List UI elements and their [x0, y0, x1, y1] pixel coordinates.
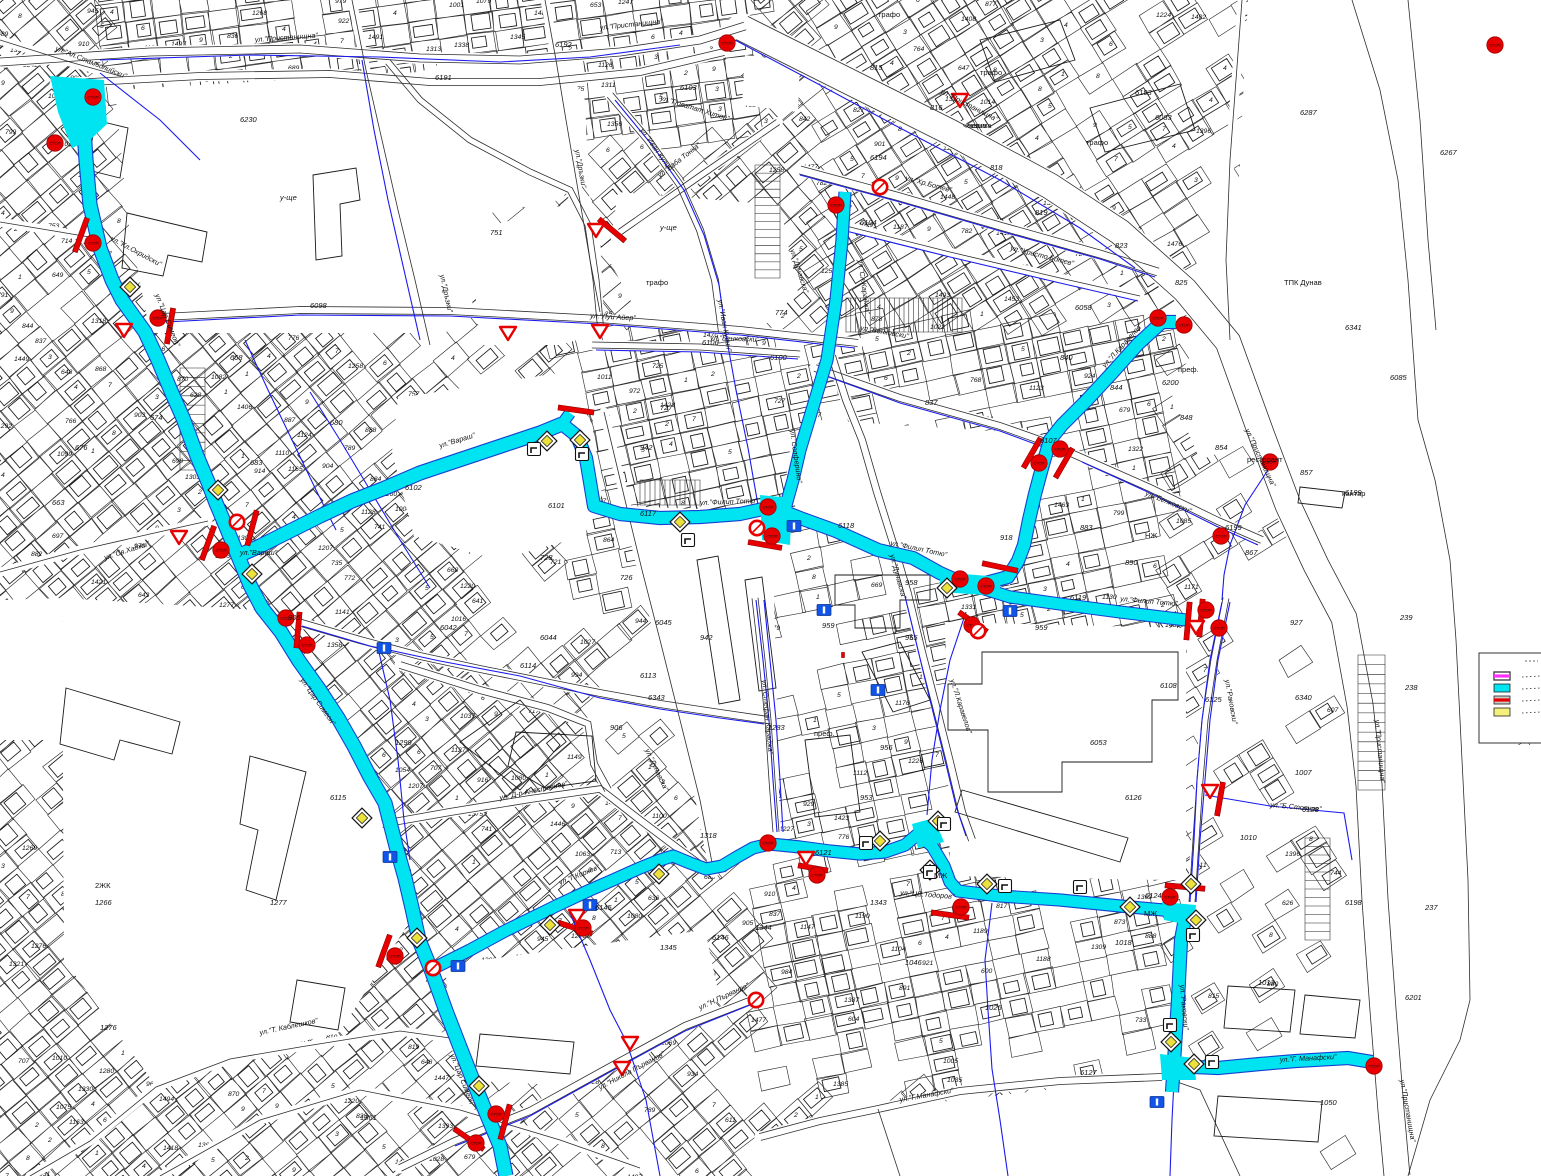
svg-text:6053: 6053 [1090, 738, 1108, 747]
svg-text:945: 945 [537, 936, 549, 943]
svg-text:1: 1 [472, 859, 476, 866]
svg-text:1224: 1224 [1156, 12, 1171, 19]
svg-text:4: 4 [1066, 561, 1070, 568]
svg-text:1408: 1408 [961, 16, 976, 23]
svg-text:4: 4 [91, 1101, 95, 1108]
svg-text:789: 789 [644, 1107, 656, 1114]
svg-text:707: 707 [18, 1058, 30, 1065]
svg-text:890: 890 [1125, 558, 1138, 567]
svg-text:1421: 1421 [91, 579, 106, 586]
svg-text:9: 9 [712, 66, 716, 73]
svg-text:6: 6 [884, 375, 888, 382]
svg-text:1396: 1396 [1196, 128, 1211, 135]
svg-text:910: 910 [78, 41, 90, 48]
svg-text:732: 732 [504, 0, 516, 1]
svg-text:5: 5 [799, 246, 803, 253]
svg-text:1010: 1010 [1240, 833, 1258, 842]
svg-text:888: 888 [365, 427, 377, 434]
svg-text:906: 906 [610, 723, 623, 732]
svg-text:1188: 1188 [1036, 956, 1051, 963]
svg-text:1: 1 [684, 377, 688, 384]
svg-text:6230: 6230 [240, 115, 258, 124]
svg-text:СТОП: СТОП [490, 1112, 501, 1117]
svg-text:934: 934 [687, 1071, 699, 1078]
svg-text:4: 4 [1, 210, 5, 217]
svg-text:942: 942 [640, 443, 653, 452]
svg-text:6103: 6103 [680, 83, 698, 92]
svg-text:714: 714 [61, 238, 73, 245]
svg-text:1127: 1127 [451, 747, 466, 754]
svg-text:6193: 6193 [1135, 88, 1153, 97]
svg-text:8: 8 [1038, 86, 1042, 93]
svg-text:6083: 6083 [1155, 113, 1173, 122]
svg-text:663: 663 [52, 498, 65, 507]
svg-text:6287: 6287 [1300, 108, 1318, 117]
svg-text:5: 5 [1128, 124, 1132, 131]
svg-text:9: 9 [571, 803, 575, 810]
svg-text:8: 8 [812, 574, 816, 581]
svg-text:3: 3 [177, 507, 181, 514]
svg-text:1: 1 [241, 453, 245, 460]
svg-text:903: 903 [134, 412, 146, 419]
svg-text:1418: 1418 [163, 1145, 178, 1152]
svg-text:7: 7 [245, 502, 249, 509]
svg-text:864: 864 [603, 537, 615, 544]
svg-text:трафо: трафо [646, 278, 668, 287]
svg-text:1449: 1449 [14, 356, 29, 363]
svg-text:6102: 6102 [405, 483, 423, 492]
svg-text:669: 669 [871, 582, 883, 589]
svg-text:СТОП: СТОП [87, 241, 98, 246]
svg-text:766: 766 [65, 418, 77, 425]
svg-text:1007: 1007 [1295, 768, 1313, 777]
svg-text:823: 823 [1115, 241, 1128, 250]
svg-text:6: 6 [417, 749, 421, 756]
svg-text:782: 782 [961, 228, 973, 235]
svg-text:СТОП: СТОП [1213, 626, 1224, 631]
svg-text:1149: 1149 [567, 754, 582, 761]
svg-text:1037: 1037 [460, 713, 475, 720]
svg-text:1187: 1187 [893, 224, 908, 231]
svg-text:1176: 1176 [895, 700, 910, 707]
svg-text:1011: 1011 [597, 374, 612, 381]
svg-text:1130: 1130 [1102, 594, 1117, 601]
svg-text:чешма: чешма [963, 121, 987, 130]
svg-text:6127: 6127 [1080, 1068, 1098, 1077]
svg-text:1247: 1247 [618, 0, 633, 6]
svg-text:5: 5 [728, 449, 732, 456]
svg-text:8: 8 [26, 1155, 30, 1162]
svg-text:904: 904 [322, 463, 334, 470]
svg-text:600: 600 [981, 968, 993, 975]
svg-text:1: 1 [1061, 71, 1065, 78]
svg-text:2: 2 [806, 555, 811, 562]
svg-text:791: 791 [0, 292, 9, 299]
svg-text:6121: 6121 [815, 848, 832, 857]
svg-text:5: 5 [382, 1144, 386, 1151]
svg-text:6340: 6340 [1295, 693, 1313, 702]
svg-text:9: 9 [927, 226, 931, 233]
svg-text:2: 2 [244, 1155, 249, 1162]
svg-text:1448: 1448 [940, 194, 955, 201]
svg-text:837: 837 [925, 398, 938, 407]
svg-text:922: 922 [338, 18, 350, 25]
svg-text:1227: 1227 [779, 826, 794, 833]
svg-text:1: 1 [1170, 404, 1174, 411]
svg-text:9: 9 [275, 1103, 279, 1110]
svg-text:1338: 1338 [454, 42, 469, 49]
svg-text:3: 3 [1194, 177, 1198, 184]
svg-text:1046: 1046 [905, 958, 923, 967]
svg-text:4: 4 [74, 384, 78, 391]
svg-text:1207: 1207 [408, 783, 423, 790]
svg-text:7: 7 [1114, 156, 1118, 163]
svg-text:5: 5 [875, 336, 879, 343]
svg-text:910: 910 [764, 891, 776, 898]
svg-text:844: 844 [1110, 383, 1123, 392]
svg-text:994: 994 [571, 672, 583, 679]
svg-text:1491: 1491 [368, 34, 383, 41]
svg-text:2ЖК: 2ЖК [95, 881, 111, 890]
svg-text:1299: 1299 [395, 738, 413, 747]
svg-text:4: 4 [890, 60, 894, 67]
svg-text:883: 883 [1080, 523, 1093, 532]
svg-text:733: 733 [1135, 1017, 1147, 1024]
svg-text:679: 679 [464, 1154, 476, 1161]
svg-text:5: 5 [1048, 103, 1052, 110]
svg-text:2: 2 [906, 350, 911, 357]
svg-text:8: 8 [592, 915, 596, 922]
svg-text:7: 7 [1203, 667, 1207, 674]
svg-text:2: 2 [197, 489, 202, 496]
svg-text:1: 1 [816, 594, 820, 601]
svg-text:1110: 1110 [275, 450, 289, 457]
svg-text:1292: 1292 [0, 423, 12, 430]
svg-text:1: 1 [18, 274, 22, 281]
svg-text:ул.”Вараш”: ул.”Вараш” [239, 548, 278, 557]
svg-text:764: 764 [913, 46, 925, 53]
svg-text:958: 958 [905, 578, 918, 587]
svg-text:1207: 1207 [318, 545, 333, 552]
svg-text:3: 3 [1, 863, 5, 870]
svg-text:преф.: преф. [814, 729, 835, 738]
svg-text:2: 2 [47, 1137, 52, 1144]
svg-text:3: 3 [48, 354, 52, 361]
svg-text:4: 4 [945, 934, 949, 941]
svg-text:3: 3 [335, 1131, 339, 1138]
svg-text:815: 815 [870, 63, 883, 72]
svg-text:1494: 1494 [159, 1096, 174, 1103]
svg-text:6201: 6201 [1405, 993, 1422, 1002]
svg-text:6124: 6124 [1145, 891, 1162, 900]
svg-text:1463: 1463 [1054, 502, 1069, 509]
svg-text:776: 776 [838, 834, 850, 841]
svg-text:1: 1 [614, 897, 618, 904]
svg-text:699: 699 [172, 458, 184, 465]
svg-text:7: 7 [618, 815, 622, 822]
svg-text:836: 836 [227, 33, 239, 40]
svg-text:1: 1 [455, 795, 459, 802]
svg-text:6191: 6191 [435, 73, 452, 82]
svg-text:816: 816 [930, 103, 943, 112]
svg-text:636: 636 [648, 895, 660, 902]
svg-text:6: 6 [65, 26, 69, 33]
svg-text:643: 643 [138, 592, 150, 599]
svg-text:1165: 1165 [288, 466, 303, 473]
svg-text:674: 674 [150, 413, 163, 422]
svg-text:2: 2 [793, 1112, 798, 1119]
svg-text:1226: 1226 [908, 758, 923, 765]
svg-text:840: 840 [1060, 353, 1073, 362]
svg-text:трафо: трафо [980, 68, 1002, 77]
svg-text:7: 7 [26, 894, 30, 901]
svg-text:735: 735 [331, 560, 343, 567]
svg-text:641: 641 [472, 598, 484, 605]
svg-text:1005: 1005 [943, 1058, 958, 1065]
svg-text:668: 668 [447, 567, 459, 574]
svg-text:7: 7 [335, 348, 339, 355]
svg-text:трафо: трафо [878, 10, 900, 19]
svg-text:5: 5 [1020, 612, 1024, 619]
svg-text:4: 4 [792, 885, 796, 892]
svg-text:1027: 1027 [580, 639, 595, 646]
svg-text:6200: 6200 [1162, 378, 1180, 387]
svg-text:668: 668 [230, 353, 243, 362]
svg-text:1010: 1010 [52, 1055, 67, 1062]
svg-text:3: 3 [1043, 586, 1047, 593]
svg-text:СТОП: СТОП [811, 873, 822, 878]
svg-text:728: 728 [540, 553, 553, 562]
svg-text:1283: 1283 [768, 723, 786, 732]
svg-text:3: 3 [903, 29, 907, 36]
svg-text:6100: 6100 [770, 353, 788, 362]
svg-text:9: 9 [618, 293, 622, 300]
svg-text:СТОП: СТОП [389, 954, 400, 959]
svg-text:1147: 1147 [800, 924, 815, 931]
svg-text:4: 4 [1209, 97, 1213, 104]
svg-text:1331: 1331 [961, 604, 976, 611]
svg-text:6114: 6114 [520, 661, 536, 670]
svg-text:6: 6 [1109, 41, 1113, 48]
svg-text:1266: 1266 [95, 898, 113, 907]
svg-text:1318: 1318 [700, 831, 718, 840]
svg-text:1358: 1358 [327, 642, 342, 649]
svg-text:1: 1 [121, 1050, 125, 1057]
svg-text:1035: 1035 [947, 1077, 962, 1084]
svg-text:604: 604 [848, 1016, 860, 1023]
svg-text:СТОП: СТОП [1178, 323, 1189, 328]
svg-text:9: 9 [241, 1106, 245, 1113]
svg-text:6199: 6199 [1345, 488, 1363, 497]
svg-text:7: 7 [340, 38, 344, 45]
svg-text:1: 1 [815, 1094, 819, 1101]
svg-text:1141: 1141 [335, 609, 350, 616]
svg-text:СТОП: СТОП [830, 203, 841, 208]
svg-text:СТОП: СТОП [215, 548, 226, 553]
svg-text:1361: 1361 [360, 1113, 377, 1122]
svg-text:4: 4 [455, 926, 459, 933]
svg-text:6108: 6108 [1160, 681, 1178, 690]
svg-text:741: 741 [374, 524, 386, 531]
svg-text:5: 5 [340, 527, 344, 534]
svg-text:6118: 6118 [838, 521, 855, 530]
svg-text:5: 5 [837, 692, 841, 699]
svg-text:1116: 1116 [221, 0, 235, 1]
svg-text:626: 626 [1282, 900, 1294, 907]
svg-text:5: 5 [430, 634, 434, 641]
svg-text:6: 6 [382, 752, 386, 759]
svg-text:956: 956 [880, 743, 893, 752]
svg-text:819: 819 [408, 1044, 420, 1051]
svg-text:1050: 1050 [1320, 1098, 1338, 1107]
svg-text:837: 837 [769, 911, 781, 918]
svg-text:6198: 6198 [1345, 898, 1363, 907]
svg-text:6: 6 [606, 147, 610, 154]
svg-text:1345: 1345 [660, 943, 678, 952]
svg-text:1001: 1001 [449, 2, 464, 9]
svg-text:6098: 6098 [310, 301, 328, 310]
svg-text:1344: 1344 [755, 923, 772, 932]
svg-text:СТОП: СТОП [721, 41, 732, 46]
svg-text:2: 2 [664, 421, 669, 428]
svg-text:4: 4 [1035, 135, 1039, 142]
svg-text:9: 9 [1, 80, 5, 87]
svg-text:6128: 6128 [1302, 805, 1320, 814]
svg-text:653: 653 [590, 2, 602, 9]
svg-text:725: 725 [652, 363, 664, 370]
svg-text:1477: 1477 [751, 1017, 766, 1024]
svg-text:887: 887 [284, 417, 296, 424]
svg-text:1: 1 [1081, 496, 1085, 503]
svg-text:1082: 1082 [211, 374, 226, 381]
svg-text:3: 3 [425, 716, 429, 723]
svg-text:1406: 1406 [237, 404, 252, 411]
svg-text:648: 648 [61, 369, 73, 376]
svg-text:1054: 1054 [395, 767, 410, 774]
svg-text:916: 916 [477, 777, 489, 784]
svg-text:868: 868 [95, 366, 107, 373]
svg-text:1313: 1313 [426, 46, 441, 53]
svg-text:945: 945 [87, 8, 99, 15]
svg-text:7: 7 [262, 1088, 266, 1095]
svg-text:857: 857 [1300, 468, 1313, 477]
svg-text:878: 878 [871, 316, 883, 323]
svg-text:9: 9 [10, 308, 14, 315]
svg-text:972: 972 [629, 388, 641, 395]
svg-text:844: 844 [22, 323, 34, 330]
svg-text:4: 4 [267, 353, 271, 360]
svg-text:1104: 1104 [891, 946, 906, 953]
svg-text:683: 683 [250, 458, 263, 467]
svg-text:870: 870 [228, 1091, 240, 1098]
svg-text:СТОП: СТОП [1215, 534, 1226, 539]
svg-text:905: 905 [742, 920, 754, 927]
svg-text:СТОП: СТОП [954, 577, 965, 582]
svg-text:8: 8 [601, 1143, 605, 1150]
svg-text:727: 727 [660, 403, 673, 412]
svg-text:744: 744 [1330, 870, 1342, 877]
svg-text:727: 727 [774, 398, 786, 405]
svg-text:914: 914 [254, 468, 266, 475]
svg-text:1026: 1026 [985, 1003, 1003, 1012]
svg-text:СТОП: СТОП [762, 841, 773, 846]
svg-text:5: 5 [850, 156, 854, 163]
svg-text:7: 7 [692, 416, 696, 423]
svg-text:1190: 1190 [855, 913, 870, 920]
svg-text:6104: 6104 [860, 218, 877, 227]
svg-text:6199: 6199 [1225, 523, 1243, 532]
svg-text:6126: 6126 [1125, 793, 1143, 802]
svg-text:7: 7 [712, 1102, 716, 1109]
svg-text:979: 979 [335, 0, 347, 5]
svg-text:преф.: преф. [1178, 365, 1199, 374]
svg-text:6101: 6101 [548, 501, 565, 510]
svg-text:3: 3 [654, 54, 658, 61]
svg-text:9: 9 [762, 340, 766, 347]
svg-text:5: 5 [622, 733, 626, 740]
svg-text:СТОП: СТОП [980, 584, 991, 589]
svg-text:1402: 1402 [1191, 14, 1206, 21]
svg-text:1: 1 [545, 772, 549, 779]
svg-text:3: 3 [807, 821, 811, 828]
svg-text:9: 9 [292, 1167, 296, 1174]
svg-text:6119: 6119 [1070, 593, 1087, 602]
svg-text:6125: 6125 [1205, 695, 1223, 704]
svg-text:1268: 1268 [252, 10, 267, 17]
svg-text:9: 9 [199, 37, 203, 44]
svg-text:СТОП: СТОП [1164, 895, 1175, 900]
svg-text:239: 239 [1399, 613, 1413, 622]
svg-text:1447: 1447 [434, 1075, 449, 1082]
svg-text:774: 774 [775, 308, 788, 317]
svg-text:1: 1 [95, 1150, 99, 1157]
svg-text:5: 5 [939, 1038, 943, 1045]
svg-text:984: 984 [781, 969, 793, 976]
svg-text:7: 7 [935, 752, 939, 759]
svg-text:768: 768 [970, 377, 982, 384]
svg-text:1063: 1063 [575, 851, 590, 858]
svg-text:697: 697 [52, 533, 64, 540]
svg-text:СТОП: СТОП [1054, 447, 1065, 452]
svg-text:6: 6 [1153, 563, 1157, 570]
svg-text:1123: 1123 [1029, 385, 1044, 392]
svg-text:772: 772 [344, 575, 356, 582]
svg-text:3: 3 [715, 86, 719, 93]
svg-text:СТОП: СТОП [1152, 316, 1163, 321]
svg-text:707: 707 [430, 765, 442, 772]
svg-text:1277: 1277 [270, 898, 288, 907]
svg-text:1280: 1280 [99, 1068, 114, 1075]
svg-text:3: 3 [872, 725, 876, 732]
svg-text:818: 818 [990, 163, 1003, 172]
svg-text:4: 4 [110, 9, 114, 16]
svg-text:1345: 1345 [510, 34, 525, 41]
svg-text:867: 867 [1245, 548, 1258, 557]
svg-text:МЖ: МЖ [1144, 909, 1157, 918]
svg-text:2: 2 [632, 408, 637, 415]
svg-text:СТОП: СТОП [762, 505, 773, 510]
svg-text:607: 607 [1327, 707, 1339, 714]
svg-text:1309: 1309 [1091, 944, 1106, 951]
svg-text:4: 4 [679, 30, 683, 37]
svg-text:648: 648 [421, 1059, 433, 1066]
svg-text:680: 680 [330, 418, 343, 427]
svg-text:7: 7 [861, 173, 865, 180]
svg-text:6: 6 [674, 795, 678, 802]
svg-text:6: 6 [141, 25, 145, 32]
svg-text:1085: 1085 [1176, 518, 1191, 525]
svg-text:1476: 1476 [1167, 241, 1182, 248]
